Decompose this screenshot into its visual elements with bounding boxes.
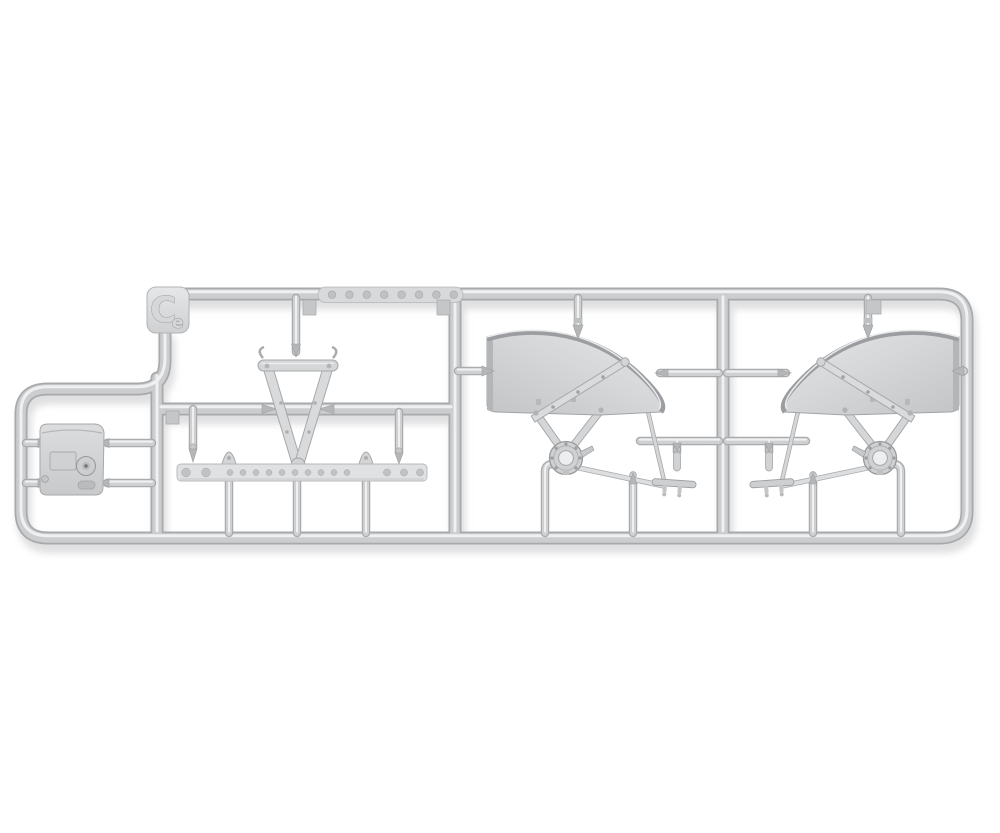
equipment-box-part (40, 424, 104, 495)
fender-assembly-right (750, 318, 964, 499)
sprue-tag: C e (147, 287, 189, 333)
fender-assembly-left (482, 318, 696, 499)
photo-stage: C e (0, 0, 1000, 833)
sprue-photo: C e (0, 0, 1000, 833)
material-mark-icon: e (172, 313, 184, 333)
